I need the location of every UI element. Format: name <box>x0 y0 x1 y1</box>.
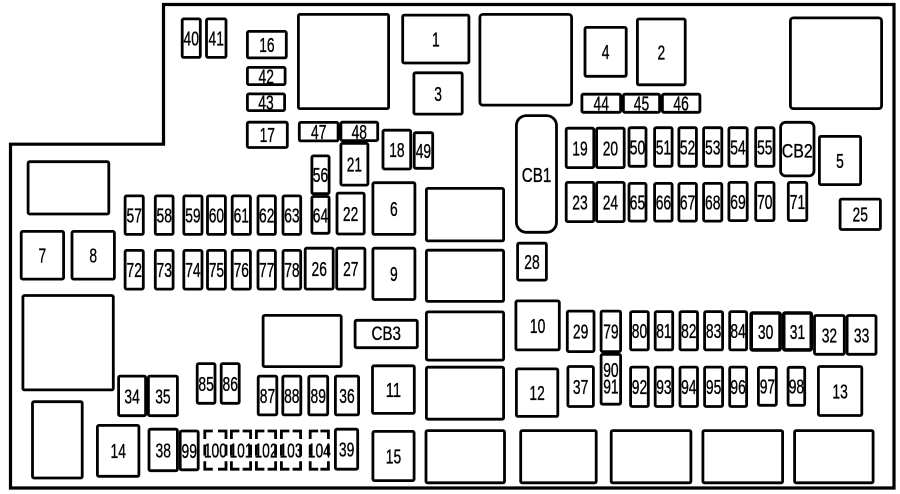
svg-text:66: 66 <box>656 192 671 215</box>
svg-text:50: 50 <box>630 136 645 159</box>
svg-text:22: 22 <box>343 203 358 226</box>
svg-text:18: 18 <box>389 139 404 162</box>
svg-text:48: 48 <box>352 121 367 144</box>
svg-text:73: 73 <box>157 259 172 282</box>
svg-text:61: 61 <box>234 205 249 228</box>
svg-text:53: 53 <box>705 136 720 159</box>
svg-text:87: 87 <box>260 385 275 408</box>
svg-text:62: 62 <box>259 205 274 228</box>
svg-text:52: 52 <box>680 136 695 159</box>
svg-text:29: 29 <box>573 321 588 344</box>
svg-text:2: 2 <box>657 41 665 64</box>
svg-text:65: 65 <box>630 192 645 215</box>
svg-text:41: 41 <box>209 28 224 51</box>
svg-text:24: 24 <box>603 191 618 214</box>
svg-text:100: 100 <box>204 440 227 463</box>
svg-text:77: 77 <box>259 259 274 282</box>
svg-text:92: 92 <box>632 376 647 399</box>
svg-text:21: 21 <box>347 154 362 177</box>
svg-text:75: 75 <box>209 259 224 282</box>
svg-text:7: 7 <box>39 245 47 268</box>
svg-text:CB3: CB3 <box>371 324 401 345</box>
svg-text:59: 59 <box>185 205 200 228</box>
svg-text:95: 95 <box>706 376 721 399</box>
svg-text:96: 96 <box>730 376 745 399</box>
svg-text:76: 76 <box>234 259 249 282</box>
svg-text:51: 51 <box>656 136 671 159</box>
svg-text:20: 20 <box>603 137 618 160</box>
svg-text:15: 15 <box>386 445 401 468</box>
svg-text:37: 37 <box>573 376 588 399</box>
svg-text:9: 9 <box>390 263 398 286</box>
svg-text:57: 57 <box>127 205 142 228</box>
svg-text:91: 91 <box>603 376 618 399</box>
svg-text:CB1: CB1 <box>522 165 552 187</box>
svg-text:79: 79 <box>603 321 618 344</box>
svg-text:34: 34 <box>124 385 139 408</box>
svg-text:3: 3 <box>434 83 442 106</box>
svg-text:42: 42 <box>259 65 274 88</box>
svg-text:44: 44 <box>594 93 609 116</box>
svg-text:35: 35 <box>155 385 170 408</box>
svg-text:28: 28 <box>524 251 539 274</box>
svg-text:43: 43 <box>258 92 273 115</box>
svg-text:1: 1 <box>432 28 440 51</box>
svg-text:63: 63 <box>284 205 299 228</box>
svg-text:30: 30 <box>758 321 773 344</box>
svg-text:86: 86 <box>223 373 238 396</box>
svg-text:102: 102 <box>254 440 277 463</box>
svg-text:104: 104 <box>308 440 331 463</box>
svg-text:16: 16 <box>259 34 274 57</box>
svg-text:46: 46 <box>673 93 688 116</box>
svg-text:38: 38 <box>156 439 171 462</box>
svg-text:60: 60 <box>209 205 224 228</box>
svg-text:83: 83 <box>706 320 721 343</box>
svg-text:25: 25 <box>853 204 868 227</box>
svg-text:84: 84 <box>730 320 745 343</box>
svg-text:CB2: CB2 <box>782 141 813 163</box>
svg-text:36: 36 <box>339 385 354 408</box>
svg-text:69: 69 <box>730 191 745 214</box>
svg-text:103: 103 <box>279 440 302 463</box>
svg-text:70: 70 <box>757 191 772 214</box>
svg-text:4: 4 <box>602 41 610 64</box>
svg-text:14: 14 <box>111 440 126 463</box>
svg-text:89: 89 <box>311 385 326 408</box>
svg-text:19: 19 <box>572 137 587 160</box>
svg-text:71: 71 <box>790 191 805 214</box>
svg-text:27: 27 <box>343 258 358 281</box>
svg-text:45: 45 <box>634 93 649 116</box>
svg-text:10: 10 <box>530 315 545 338</box>
svg-text:11: 11 <box>386 379 401 402</box>
svg-text:40: 40 <box>184 28 199 51</box>
svg-text:82: 82 <box>681 320 696 343</box>
svg-text:17: 17 <box>260 124 275 147</box>
svg-text:85: 85 <box>198 373 213 396</box>
svg-text:68: 68 <box>705 192 720 215</box>
svg-text:80: 80 <box>632 320 647 343</box>
svg-text:64: 64 <box>313 204 328 227</box>
svg-text:98: 98 <box>789 376 804 399</box>
svg-text:97: 97 <box>760 376 775 399</box>
svg-text:56: 56 <box>313 164 328 187</box>
svg-text:8: 8 <box>89 245 97 268</box>
svg-text:78: 78 <box>284 259 299 282</box>
svg-text:31: 31 <box>790 321 805 344</box>
svg-text:55: 55 <box>757 136 772 159</box>
svg-text:72: 72 <box>127 259 142 282</box>
svg-text:26: 26 <box>312 258 327 281</box>
svg-text:88: 88 <box>284 385 299 408</box>
svg-text:12: 12 <box>529 382 544 405</box>
svg-text:5: 5 <box>836 150 844 173</box>
svg-text:32: 32 <box>822 324 837 347</box>
svg-text:49: 49 <box>416 140 431 163</box>
svg-text:93: 93 <box>656 376 671 399</box>
svg-text:47: 47 <box>311 121 326 144</box>
svg-text:101: 101 <box>229 440 252 463</box>
svg-text:99: 99 <box>182 440 197 463</box>
svg-text:67: 67 <box>680 192 695 215</box>
svg-text:54: 54 <box>730 136 745 159</box>
svg-text:39: 39 <box>339 439 354 462</box>
svg-text:13: 13 <box>832 380 847 403</box>
svg-text:58: 58 <box>157 205 172 228</box>
svg-text:23: 23 <box>572 191 587 214</box>
svg-text:94: 94 <box>681 376 696 399</box>
svg-text:6: 6 <box>390 198 398 221</box>
svg-text:33: 33 <box>854 324 869 347</box>
svg-text:74: 74 <box>185 259 200 282</box>
svg-text:81: 81 <box>656 320 671 343</box>
